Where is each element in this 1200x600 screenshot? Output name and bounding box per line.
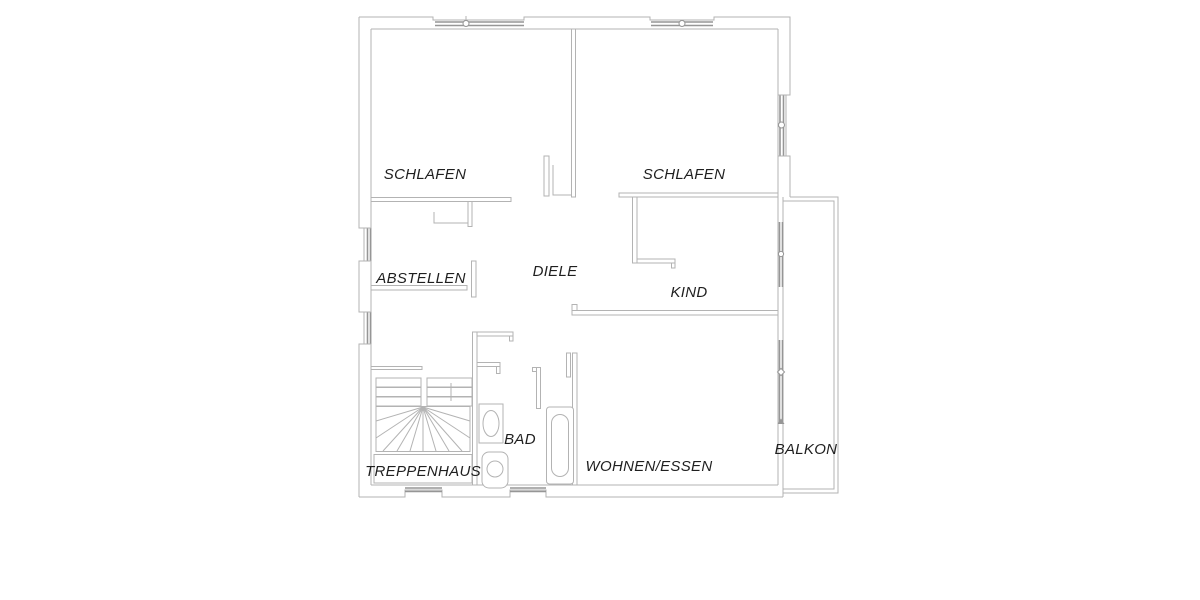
floor-plan-drawing: SCHLAFEN SCHLAFEN ABSTELLEN DIELE KIND B… <box>0 0 1200 600</box>
window-left-upper <box>364 228 371 261</box>
window-right-upper <box>778 95 786 156</box>
window-left-lower <box>364 312 371 344</box>
floor-plan: SCHLAFEN SCHLAFEN ABSTELLEN DIELE KIND B… <box>0 0 1200 600</box>
room-label-bad: BAD <box>504 431 536 448</box>
window-top-left <box>435 16 524 27</box>
washbasin-icon <box>479 404 503 443</box>
room-label-kind: KIND <box>670 284 707 301</box>
room-label-diele: DIELE <box>533 263 579 280</box>
room-label-treppenhaus: TREPPENHAUS <box>365 463 481 480</box>
room-label-abstellen: ABSTELLEN <box>375 270 465 287</box>
window-top-right <box>651 21 713 27</box>
bathtub-icon <box>547 407 574 484</box>
toilet-icon <box>482 452 508 488</box>
room-label-wohnen-essen: WOHNEN/ESSEN <box>586 458 713 475</box>
room-label-balkon: BALKON <box>775 441 838 458</box>
balcony-door <box>778 222 783 287</box>
room-label-schlafen-right: SCHLAFEN <box>643 166 725 183</box>
room-label-schlafen-left: SCHLAFEN <box>384 166 466 183</box>
